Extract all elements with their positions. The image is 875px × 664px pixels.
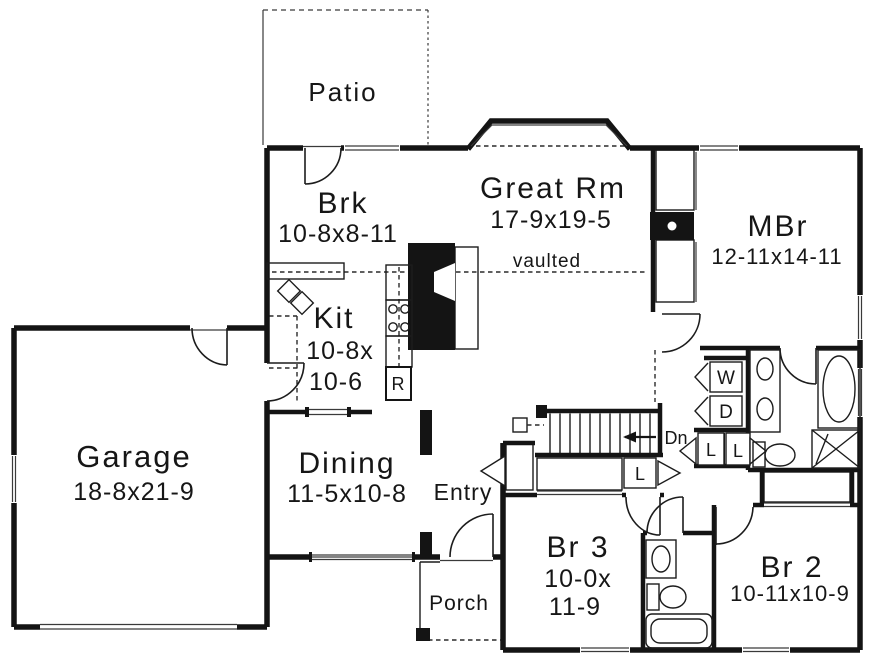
garage-label: Garage bbox=[76, 439, 191, 474]
bedroom2-dims: 10-11x10-9 bbox=[730, 581, 850, 606]
bedroom3-window bbox=[581, 646, 629, 655]
fireplace bbox=[408, 243, 478, 350]
breakfast-dims: 10-8x8-11 bbox=[278, 220, 398, 248]
master-bedroom-dims: 12-11x14-11 bbox=[711, 244, 842, 269]
kitchen-label: Kit bbox=[313, 302, 354, 335]
linen-label-1: L bbox=[635, 464, 645, 484]
master-bedroom-label: MBr bbox=[748, 210, 809, 243]
wall-stub-kitchen-entry bbox=[420, 410, 432, 455]
hall-bath-fixtures bbox=[646, 540, 712, 648]
vanity-sink-1 bbox=[757, 358, 773, 380]
bedroom3-closet bbox=[537, 458, 622, 490]
bedroom3-dims-1: 10-0x bbox=[544, 565, 612, 593]
master-bath-fixtures bbox=[750, 350, 860, 468]
toilet-bowl-hall bbox=[660, 586, 686, 608]
bedroom2-window bbox=[743, 646, 789, 655]
bedroom2-door bbox=[716, 507, 753, 545]
dining-dims: 11-5x10-8 bbox=[287, 480, 407, 508]
linen-wedge-1 bbox=[658, 461, 680, 485]
laundry-bifold-top bbox=[695, 363, 708, 391]
bedroom2-label: Br 2 bbox=[760, 551, 823, 584]
linen-label-3: L bbox=[733, 441, 743, 461]
patio-label: Patio bbox=[308, 77, 377, 107]
porch-post bbox=[416, 628, 430, 641]
breakfast-window bbox=[344, 144, 400, 153]
master-side-window bbox=[856, 296, 865, 339]
entry-coat-closet bbox=[506, 444, 533, 490]
stairs-down-label: Dn bbox=[664, 428, 687, 448]
floor-plan: Patio Brk 10-8x8-11 Great Rm 17-9x19-5 v… bbox=[0, 0, 875, 664]
kitchen-counter-lines bbox=[190, 147, 399, 405]
garage-door bbox=[40, 625, 237, 630]
kitchen-dims-1: 10-8x bbox=[306, 337, 374, 365]
washer-label: W bbox=[717, 368, 735, 389]
master-closet-2 bbox=[656, 240, 694, 302]
master-closet-1 bbox=[656, 150, 694, 210]
stair-newel bbox=[513, 418, 527, 432]
tub-surround bbox=[818, 350, 860, 428]
toilet-tank-hall bbox=[647, 584, 659, 610]
garage-dims: 18-8x21-9 bbox=[73, 478, 195, 506]
linen-label-2: L bbox=[706, 440, 716, 460]
great-room-dims: 17-9x19-5 bbox=[490, 206, 612, 234]
master-bedroom-door bbox=[662, 314, 700, 352]
bedroom3-label: Br 3 bbox=[546, 531, 609, 564]
stair-rail-cap bbox=[536, 405, 547, 418]
hall-bath-door bbox=[647, 497, 683, 533]
breakfast-counter bbox=[267, 263, 344, 279]
master-tub bbox=[823, 356, 855, 422]
bedroom2-closet bbox=[764, 472, 850, 502]
vanity-sink-2 bbox=[757, 398, 773, 420]
bedroom3-dims-2: 11-9 bbox=[549, 593, 601, 621]
breakfast-patio-door bbox=[305, 148, 341, 184]
dining-window bbox=[309, 552, 415, 562]
dining-label: Dining bbox=[298, 447, 395, 480]
porch-label: Porch bbox=[429, 592, 489, 615]
entry-label: Entry bbox=[434, 479, 493, 505]
great-room-ceiling-note: vaulted bbox=[513, 251, 581, 272]
front-door bbox=[450, 514, 493, 557]
hearth bbox=[455, 247, 478, 349]
breakfast-label: Brk bbox=[318, 187, 369, 220]
garage-service-door bbox=[192, 328, 227, 365]
stairs bbox=[513, 414, 656, 454]
refrigerator-label: R bbox=[392, 374, 405, 394]
dryer-label: D bbox=[719, 402, 733, 423]
kitchen-dims-2: 10-6 bbox=[309, 368, 363, 396]
wall-stub-dining-entry bbox=[420, 532, 432, 557]
laundry-bifold-bottom bbox=[695, 397, 708, 425]
garage-window bbox=[10, 456, 19, 502]
master-bath-door bbox=[780, 348, 816, 384]
toilet-bowl-master bbox=[765, 444, 795, 466]
floor-plan-page: Patio Brk 10-8x8-11 Great Rm 17-9x19-5 v… bbox=[0, 0, 875, 664]
hall-sink bbox=[652, 546, 670, 572]
master-top-window bbox=[699, 144, 739, 153]
bedroom3-door bbox=[626, 497, 660, 535]
great-room-label: Great Rm bbox=[480, 172, 626, 205]
chase-vent-dot bbox=[668, 222, 677, 231]
